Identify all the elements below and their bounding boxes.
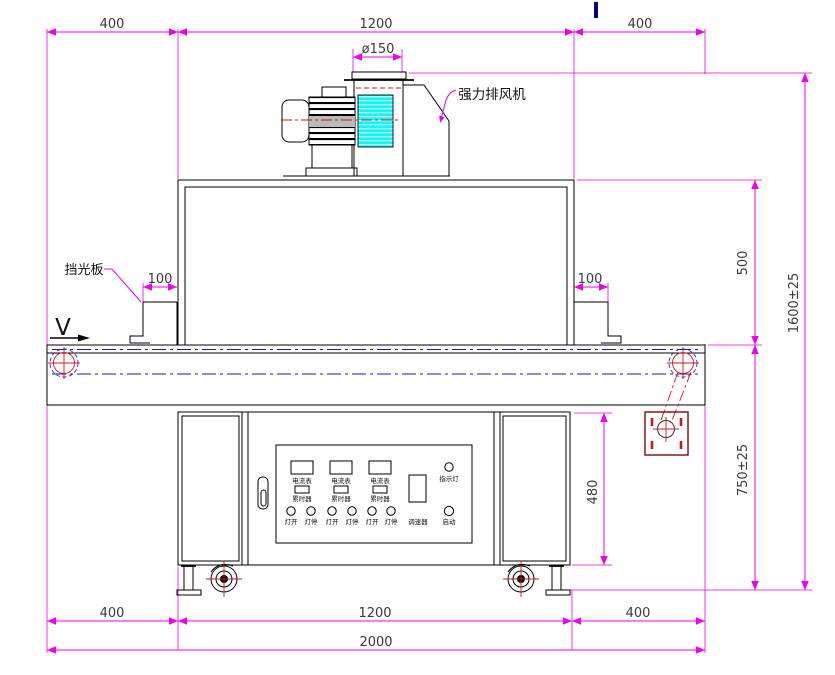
lamp-button-2 xyxy=(307,507,315,515)
ammeter-3 xyxy=(369,461,391,474)
shield-label: 挡光板 xyxy=(64,263,103,278)
lamp-label-2: 灯停 xyxy=(305,517,319,526)
extension-lines xyxy=(47,29,812,653)
indicator-light xyxy=(445,463,453,471)
dim-duct-diameter: ø150 xyxy=(362,42,395,57)
lamp-button-5 xyxy=(368,507,376,515)
cabinet-body xyxy=(178,412,570,565)
fan-label: 强力排风机 xyxy=(458,87,526,103)
ammeter-label-2: 电流表 xyxy=(331,476,351,485)
dim-top-center: 1200 xyxy=(359,17,392,32)
lamp-label-3: 灯开 xyxy=(326,517,340,526)
timer-3 xyxy=(373,486,387,493)
dim-shield-right: 100 xyxy=(578,272,603,287)
control-panel-plate xyxy=(276,445,472,543)
control-panel: 电流表 电流表 电流表 累时器 累时器 累时器 灯开 灯停 灯开 灯停 灯开 灯… xyxy=(276,445,472,543)
ammeter-2 xyxy=(330,461,352,474)
dim-tunnel-height: 500 xyxy=(736,251,751,276)
start-button xyxy=(444,506,453,515)
motor-pedestal xyxy=(312,145,352,168)
dim-total-width: 2000 xyxy=(359,635,392,650)
top-tick-mark xyxy=(594,2,598,18)
shield-plate-left xyxy=(130,302,177,345)
indicator-light-label: 指示灯 xyxy=(439,474,459,483)
timer-label-1: 累时器 xyxy=(292,494,312,503)
fan-volute-housing xyxy=(403,85,449,176)
dim-bottom-left: 400 xyxy=(100,606,125,621)
dim-top-right: 400 xyxy=(628,17,653,32)
duct-flange xyxy=(352,72,406,79)
lamp-label-1: 灯开 xyxy=(285,517,299,526)
dim-top-left: 400 xyxy=(100,17,125,32)
ammeter-label-1: 电流表 xyxy=(292,476,312,485)
lamp-label-5: 灯开 xyxy=(366,517,380,526)
cabinet-door-right xyxy=(503,416,566,561)
uv-tunnel xyxy=(178,180,574,345)
dim-cabinet-height: 480 xyxy=(586,480,601,505)
timer-label-2: 累时器 xyxy=(331,494,351,503)
ammeter-label-3: 电流表 xyxy=(370,476,390,485)
lamp-button-1 xyxy=(287,507,295,515)
drawing-canvas: 电流表 电流表 电流表 累时器 累时器 累时器 灯开 灯停 灯开 灯停 灯开 灯… xyxy=(0,0,835,675)
fan-coupling xyxy=(358,95,393,147)
speed-controller xyxy=(409,475,426,502)
dim-belt-height: 750±25 xyxy=(736,444,751,496)
motor-end-cap xyxy=(282,100,309,142)
caster-right xyxy=(503,561,539,597)
drive-mount xyxy=(645,372,691,455)
leveling-foot-right xyxy=(546,566,570,595)
timer-1 xyxy=(295,486,309,493)
start-button-label: 启动 xyxy=(443,517,457,526)
shield-plate-right xyxy=(574,302,621,343)
lamp-button-4 xyxy=(348,507,356,515)
dim-total-height: 1600±25 xyxy=(787,273,802,334)
dimension-lines xyxy=(47,32,805,650)
speed-controller-label: 调速器 xyxy=(408,517,428,526)
dim-bottom-right: 400 xyxy=(626,606,651,621)
motor-terminal-box xyxy=(322,87,346,97)
machine-drawing: 电流表 电流表 电流表 累时器 累时器 累时器 灯开 灯停 灯开 灯停 灯开 灯… xyxy=(0,0,835,675)
lamp-button-6 xyxy=(387,507,395,515)
dim-shield-left: 100 xyxy=(148,272,173,287)
timer-2 xyxy=(334,486,348,493)
lamp-button-3 xyxy=(328,507,336,515)
ammeter-1 xyxy=(291,461,313,474)
conveyor-frame xyxy=(47,345,705,405)
belt-direction-label: V xyxy=(55,315,71,341)
timer-label-3: 累时器 xyxy=(370,494,390,503)
conveyor xyxy=(47,345,705,405)
cabinet xyxy=(178,412,570,565)
lamp-label-6: 灯停 xyxy=(385,517,399,526)
cabinet-door-left xyxy=(182,416,239,561)
leveling-foot-left xyxy=(177,566,201,595)
exhaust-fan-assembly xyxy=(281,72,450,176)
lamp-label-4: 灯停 xyxy=(346,517,360,526)
dim-bottom-center: 1200 xyxy=(358,606,391,621)
caster-left xyxy=(206,561,242,597)
motor-base xyxy=(306,168,357,176)
